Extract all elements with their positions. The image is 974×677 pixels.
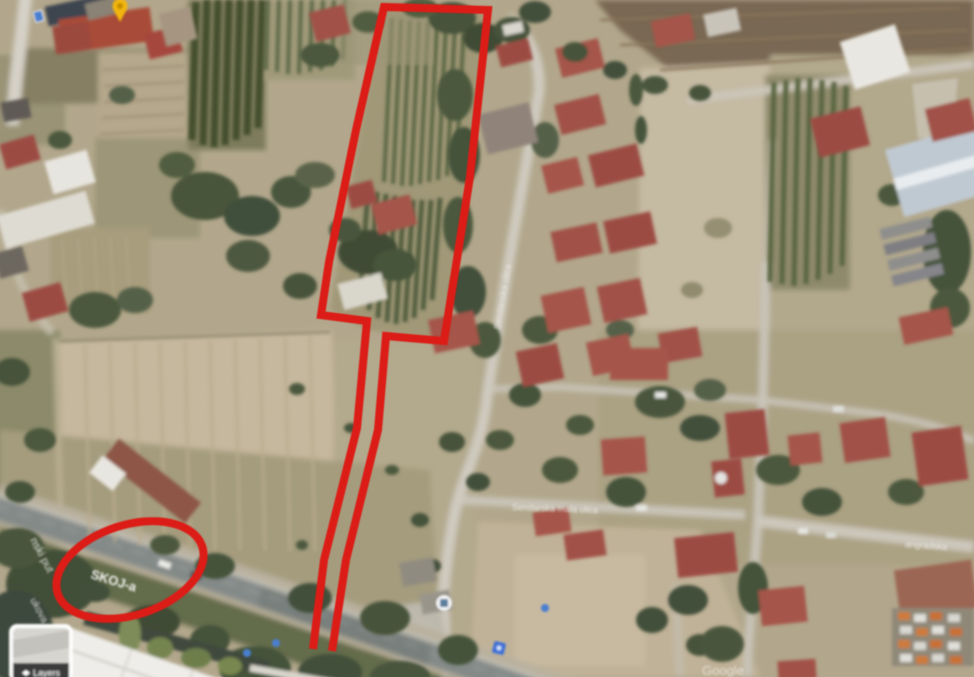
svg-text:Google: Google <box>702 663 744 677</box>
svg-text:Layers: Layers <box>33 668 61 677</box>
